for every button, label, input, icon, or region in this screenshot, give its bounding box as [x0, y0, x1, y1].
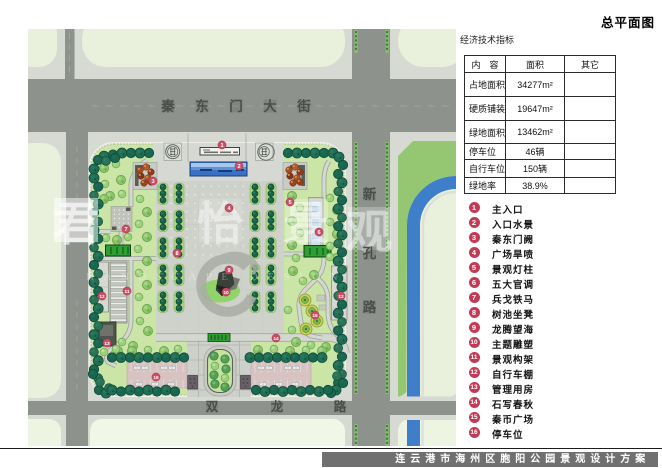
svg-text:龙: 龙 [270, 399, 284, 414]
svg-text:东: 东 [195, 98, 209, 114]
svg-text:双: 双 [205, 400, 219, 414]
svg-text:景: 景 [283, 199, 329, 250]
svg-text:16: 16 [153, 375, 159, 381]
svg-text:12: 12 [338, 294, 344, 300]
svg-text:街: 街 [296, 98, 311, 114]
svg-text:13: 13 [104, 341, 110, 347]
svg-text:2: 2 [237, 164, 240, 170]
svg-text:8: 8 [175, 251, 178, 257]
svg-text:大: 大 [263, 98, 277, 114]
svg-text:HANDSCAPE DESIGN: HANDSCAPE DESIGN [86, 271, 347, 283]
svg-text:10: 10 [223, 290, 229, 296]
svg-text:14: 14 [273, 336, 279, 342]
svg-text:9: 9 [227, 268, 230, 274]
svg-text:5: 5 [288, 200, 291, 206]
svg-text:15: 15 [312, 313, 318, 319]
svg-text:11: 11 [124, 289, 129, 295]
svg-text:孔: 孔 [363, 246, 377, 261]
svg-text:新: 新 [363, 186, 377, 202]
svg-text:7: 7 [124, 227, 127, 233]
svg-text:6: 6 [317, 230, 320, 236]
svg-text:3: 3 [151, 179, 154, 185]
svg-text:12: 12 [99, 294, 105, 300]
svg-text:路: 路 [363, 299, 377, 315]
svg-text:1: 1 [220, 143, 223, 149]
svg-text:秦: 秦 [160, 98, 175, 114]
svg-text:路: 路 [334, 399, 347, 414]
svg-text:门: 门 [229, 98, 243, 114]
svg-text:怡: 怡 [197, 199, 243, 250]
svg-text:君: 君 [53, 199, 99, 250]
